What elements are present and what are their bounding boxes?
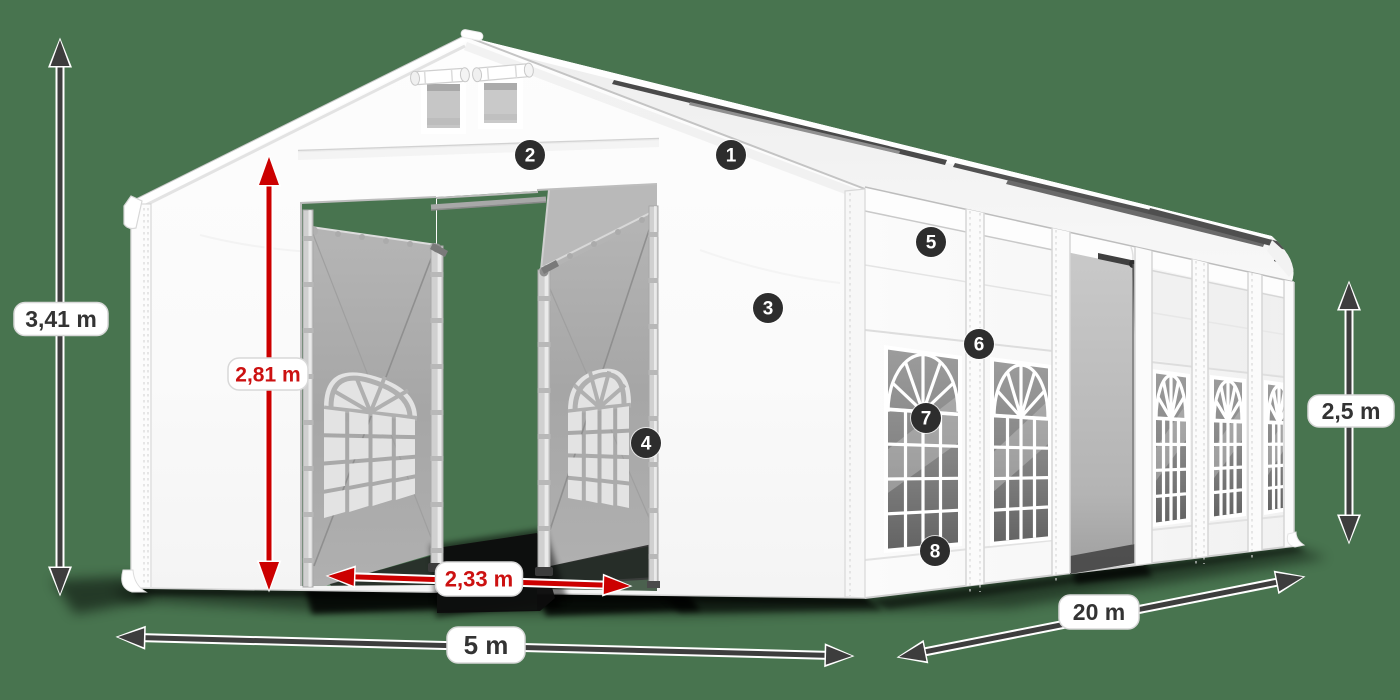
svg-text:2,5 m: 2,5 m [1322,398,1381,424]
svg-text:20 m: 20 m [1073,599,1125,625]
svg-text:1: 1 [726,146,737,167]
svg-text:3: 3 [763,299,774,320]
svg-text:5: 5 [926,233,937,254]
svg-text:4: 4 [641,434,652,455]
svg-text:2,33 m: 2,33 m [445,567,514,592]
svg-text:3,41 m: 3,41 m [25,306,97,332]
svg-text:5 m: 5 m [464,630,509,660]
svg-text:7: 7 [921,409,932,430]
svg-text:8: 8 [930,542,941,563]
svg-text:2,81 m: 2,81 m [235,363,300,386]
svg-text:6: 6 [974,335,985,356]
svg-text:2: 2 [525,146,536,167]
